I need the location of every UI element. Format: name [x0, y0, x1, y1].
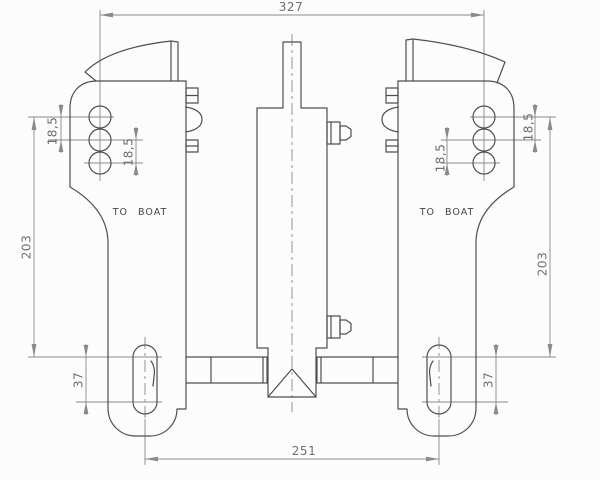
dim-203-left-label: 203	[20, 235, 34, 259]
dim-37-left-label: 37	[72, 372, 86, 388]
upper-fitting-nut	[327, 122, 340, 144]
arrow-203-left-bottom	[32, 344, 37, 357]
dim-185-left-inner-label: 18,5	[122, 138, 136, 167]
arrow-203-right-bottom	[548, 344, 553, 357]
lower-fitting-nut	[327, 316, 340, 338]
arrow-203-right-top	[548, 117, 553, 130]
to-boat-label-right: TO BOAT	[419, 207, 475, 218]
dim-37-right-label: 37	[482, 372, 496, 388]
arrow-185-lo-top	[59, 105, 64, 117]
dim-203-right-label: 203	[536, 252, 550, 276]
dim-327-label: 327	[279, 0, 303, 14]
left-tie-bar	[186, 357, 267, 383]
right-bulge	[382, 107, 398, 132]
arrow-327-left	[100, 13, 113, 18]
upper-fitting-cap	[340, 126, 351, 140]
left-fin	[85, 41, 178, 81]
dimension-arrowheads	[32, 13, 553, 462]
arrow-327-right	[471, 13, 484, 18]
arrow-37-left-top	[84, 345, 89, 357]
right-bracket-outline	[398, 81, 514, 436]
left-bracket	[70, 41, 202, 436]
arrow-185-ri-top	[445, 128, 450, 140]
lower-fitting-cap	[340, 320, 351, 334]
centerlines	[145, 34, 439, 419]
left-bulge	[186, 107, 202, 132]
arrow-251-right	[426, 457, 439, 462]
arrow-203-left-top	[32, 117, 37, 130]
arrow-37-left-bottom	[84, 402, 89, 414]
technical-drawing-page: 327 251 203 203 18,5 18,5 18,5 18,5 37 3…	[0, 0, 600, 480]
dim-185-right-outer-label: 18,5	[522, 113, 536, 142]
right-slot-inner-edge	[430, 361, 433, 386]
arrow-37-right-bottom	[494, 402, 499, 414]
upper-fitting	[327, 122, 351, 144]
arrow-37-right-top	[494, 345, 499, 357]
arrow-251-left	[145, 457, 158, 462]
dim-185-left-outer-label: 18,5	[46, 117, 60, 146]
technical-drawing-canvas: 327 251 203 203 18,5 18,5 18,5 18,5 37 3…	[0, 0, 600, 480]
left-slot-inner-edge	[151, 361, 154, 386]
right-fin	[406, 39, 505, 83]
dim-185-right-inner-label: 18,5	[434, 144, 448, 173]
lower-fitting	[327, 316, 351, 338]
left-bracket-outline	[70, 81, 186, 436]
dimension-texts: 327 251 203 203 18,5 18,5 18,5 18,5 37 3…	[20, 0, 550, 458]
hydraulic-cylinder	[257, 42, 351, 397]
dim-251-label: 251	[292, 444, 316, 458]
to-boat-label-left: TO BOAT	[112, 207, 168, 218]
right-tie-bar	[317, 357, 398, 383]
part-labels: TO BOAT TO BOAT	[112, 207, 475, 218]
